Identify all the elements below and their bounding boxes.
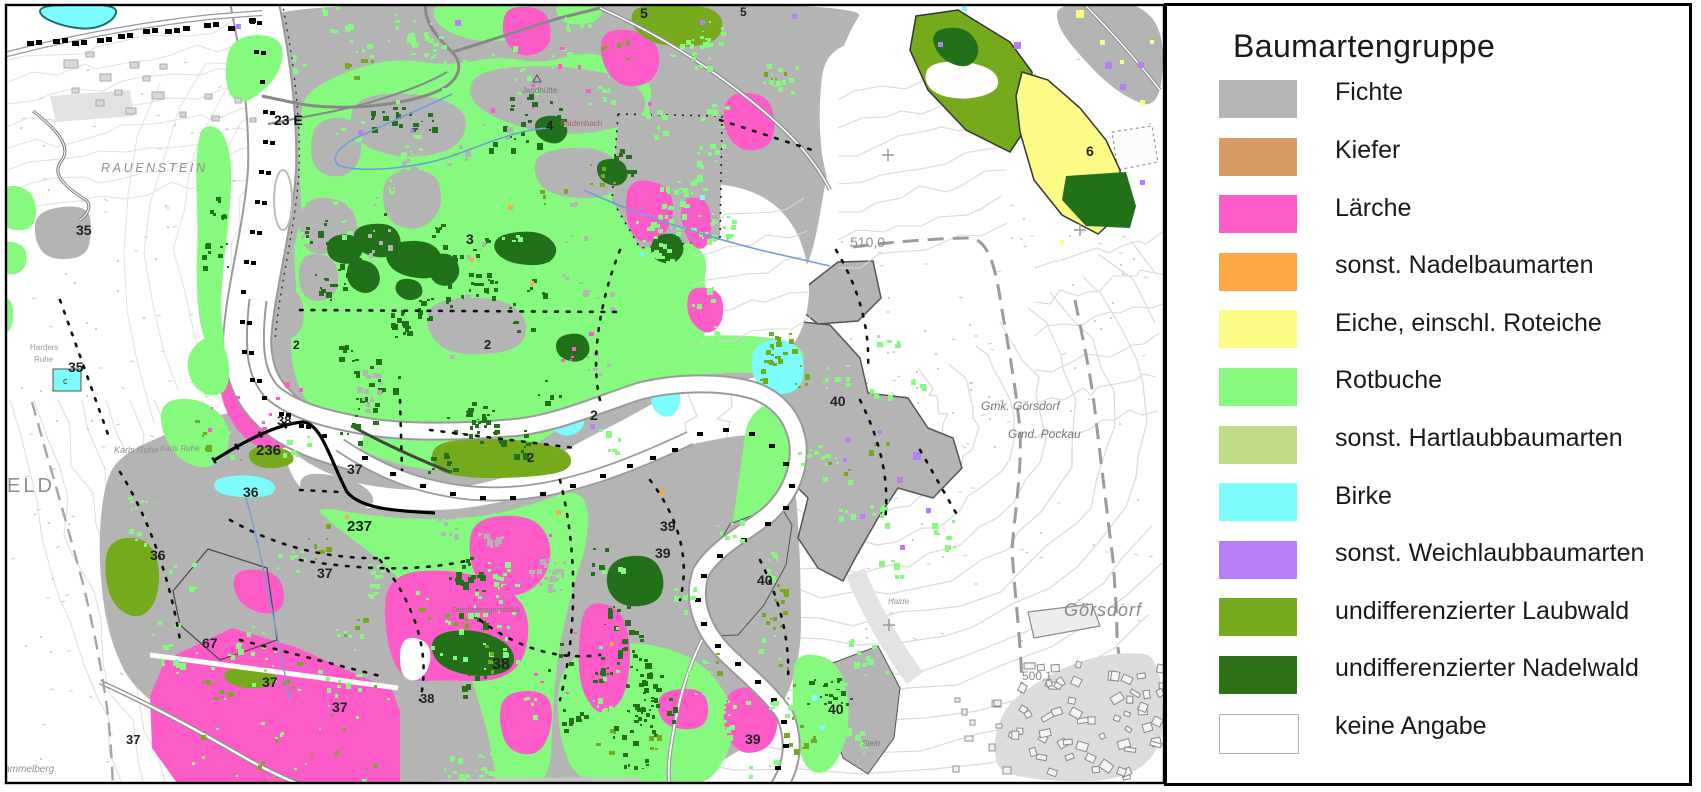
svg-text:Harders: Harders: [30, 343, 58, 352]
svg-text:5: 5: [640, 5, 648, 21]
svg-text:5: 5: [740, 5, 747, 19]
svg-text:c: c: [63, 376, 68, 386]
svg-text:40: 40: [828, 701, 844, 717]
svg-text:510,0: 510,0: [850, 234, 885, 250]
svg-text:4: 4: [546, 118, 554, 133]
svg-text:Gmd. Pockau: Gmd. Pockau: [1008, 427, 1081, 441]
svg-text:Ruhe: Ruhe: [34, 355, 54, 364]
svg-text:35: 35: [68, 359, 84, 375]
svg-text:Saidenbach: Saidenbach: [560, 119, 602, 128]
svg-text:Karls Ruhe: Karls Ruhe: [160, 444, 200, 453]
svg-text:35: 35: [76, 222, 92, 238]
svg-text:Gmk. Görsdorf: Gmk. Görsdorf: [981, 399, 1061, 413]
svg-text:40: 40: [830, 393, 846, 409]
svg-text:2: 2: [484, 337, 491, 352]
svg-text:67: 67: [202, 635, 218, 651]
svg-text:237: 237: [347, 518, 372, 535]
svg-text:Görsdorf: Görsdorf: [1064, 600, 1143, 620]
svg-text:ELD: ELD: [7, 475, 55, 497]
svg-text:37: 37: [262, 674, 278, 690]
svg-text:39: 39: [745, 731, 761, 747]
svg-text:23 E: 23 E: [274, 112, 303, 128]
svg-text:38: 38: [492, 656, 510, 673]
svg-text:37: 37: [332, 699, 348, 715]
svg-text:2: 2: [590, 407, 598, 423]
svg-text:500,1: 500,1: [1022, 669, 1052, 683]
svg-text:37: 37: [317, 565, 333, 581]
svg-text:RAUENSTEIN: RAUENSTEIN: [101, 161, 208, 175]
svg-text:38: 38: [420, 691, 434, 706]
svg-text:40: 40: [757, 572, 773, 588]
svg-text:Halde: Halde: [888, 597, 909, 606]
svg-text:3: 3: [466, 231, 474, 247]
svg-text:39: 39: [660, 518, 676, 534]
svg-text:37: 37: [126, 732, 140, 747]
svg-text:39: 39: [655, 545, 671, 561]
svg-text:236: 236: [256, 442, 281, 459]
svg-text:2: 2: [527, 450, 534, 465]
svg-text:Stein: Stein: [862, 739, 881, 748]
svg-text:Karls Ruhe: Karls Ruhe: [114, 445, 159, 455]
svg-text:6: 6: [1086, 143, 1094, 159]
svg-text:36: 36: [243, 484, 259, 500]
svg-text:2: 2: [293, 338, 300, 352]
svg-text:36: 36: [150, 547, 166, 563]
svg-text:37: 37: [347, 461, 363, 477]
svg-text:38: 38: [277, 413, 291, 428]
svg-text:Jagdhütte: Jagdhütte: [522, 86, 558, 95]
svg-text:Oberravensgrundblick: Oberravensgrundblick: [452, 607, 521, 614]
svg-text:lammelberg: lammelberg: [2, 764, 55, 775]
